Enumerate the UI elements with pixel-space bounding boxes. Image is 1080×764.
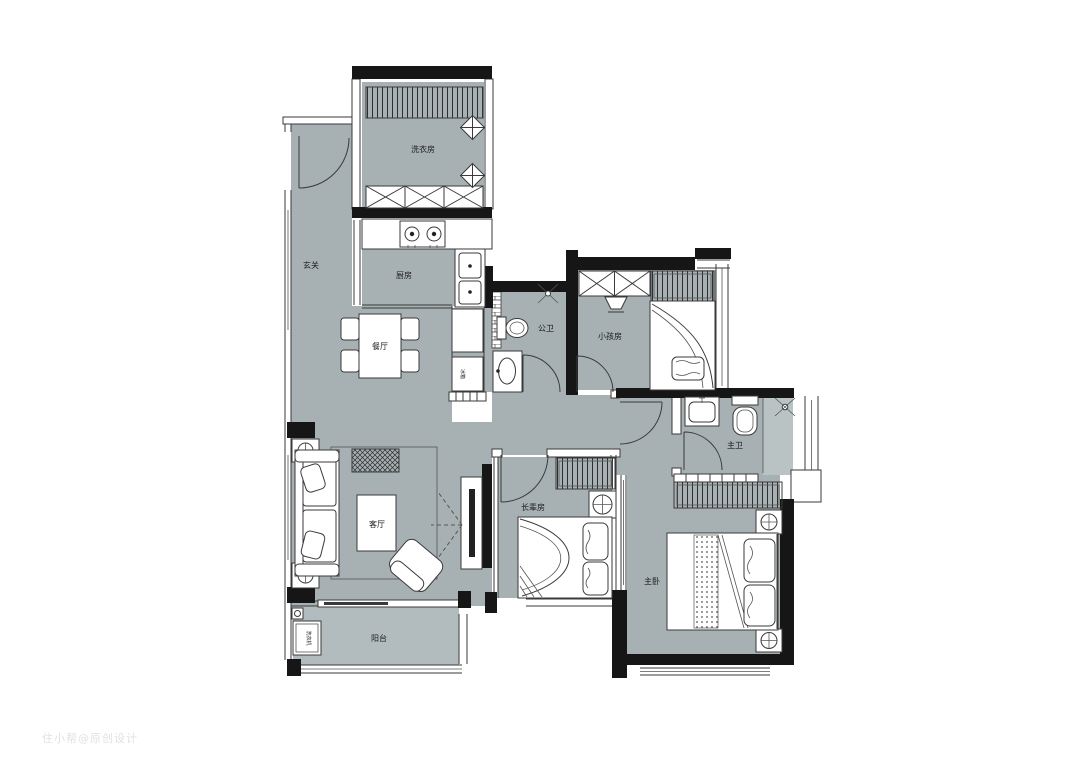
pillow bbox=[744, 539, 775, 582]
wall-kids-top-right bbox=[695, 248, 731, 259]
kids-closet bbox=[651, 271, 714, 301]
laundry-cabinet-row bbox=[366, 186, 483, 208]
room-label-entry: 玄关 bbox=[303, 260, 319, 270]
kids-bed bbox=[650, 301, 715, 390]
dining-chair bbox=[341, 318, 359, 340]
fridge-label: 冰箱 bbox=[459, 369, 466, 379]
floor-drain-icon bbox=[292, 608, 303, 619]
master-hall-floor bbox=[616, 398, 676, 475]
wall-bath-public-top bbox=[489, 281, 578, 292]
wall-living-br-pier bbox=[458, 591, 471, 608]
elder-bottom-window bbox=[526, 599, 612, 606]
wall-master-left-pier bbox=[612, 590, 627, 678]
floor-plan-page: 洗衣房 厨房 玄关 餐厅 冰箱 bbox=[0, 0, 1080, 764]
pillow bbox=[583, 523, 608, 560]
tv-unit bbox=[461, 477, 482, 569]
elder-bed bbox=[518, 517, 612, 598]
wall-elder-left-pier bbox=[485, 592, 497, 613]
room-label-master: 主卧 bbox=[644, 576, 660, 586]
pillow bbox=[672, 357, 704, 380]
balcony-right-window bbox=[459, 614, 467, 664]
stove-icon bbox=[400, 221, 445, 248]
laundry-left-wall bbox=[352, 79, 360, 209]
room-label-kids: 小孩房 bbox=[598, 331, 622, 341]
master-cabinet-row bbox=[674, 474, 758, 482]
dining-chair bbox=[401, 350, 419, 372]
room-label-living: 客厅 bbox=[369, 519, 385, 529]
storage-bench bbox=[352, 449, 399, 472]
wall-left-pier-b bbox=[287, 587, 315, 603]
laundry-right-wall bbox=[485, 79, 493, 209]
nightstand-lamp-icon bbox=[756, 629, 782, 652]
wall-living-right bbox=[482, 464, 492, 568]
tall-cabinet bbox=[452, 309, 483, 352]
sliding-door-panel bbox=[324, 602, 388, 605]
toilet-icon bbox=[732, 396, 758, 435]
kitchen-sink-icon bbox=[455, 249, 485, 307]
wall-kids-top bbox=[578, 257, 695, 270]
master-wardrobe bbox=[674, 482, 782, 508]
room-label-bath-public: 公卫 bbox=[538, 324, 554, 333]
watermark: 住小帮@原创设计 bbox=[42, 730, 138, 746]
cabinet-row bbox=[449, 392, 486, 401]
pillow bbox=[583, 562, 608, 595]
wall-left-pier-a bbox=[287, 422, 315, 438]
drying-rack-icon bbox=[366, 87, 483, 118]
room-label-balcony: 阳台 bbox=[371, 633, 387, 643]
room-label-dining: 餐厅 bbox=[372, 342, 388, 351]
left-exterior-wall bbox=[285, 124, 291, 660]
kitchen-left-wall bbox=[354, 220, 360, 305]
room-label-kitchen: 厨房 bbox=[396, 270, 412, 280]
washer-label: 洗衣机 bbox=[305, 630, 312, 645]
washbasin-icon bbox=[493, 351, 522, 392]
nightstand-lamp-icon bbox=[756, 510, 782, 534]
blanket-band bbox=[694, 535, 718, 628]
washing-machine-icon: 洗衣机 bbox=[293, 621, 321, 655]
toilet-icon bbox=[497, 317, 528, 339]
wall-master-bottom bbox=[627, 654, 794, 665]
wall-balcony-corner bbox=[287, 659, 301, 676]
elder-wardrobe bbox=[556, 458, 615, 489]
exterior-niche bbox=[791, 470, 821, 502]
floor-plan-svg: 洗衣房 厨房 玄关 餐厅 冰箱 bbox=[0, 0, 1080, 764]
wall-laundry-bottom bbox=[352, 207, 492, 218]
pillow bbox=[744, 585, 775, 626]
nightstand-lamp-icon bbox=[589, 491, 616, 518]
dining-chair bbox=[341, 350, 359, 372]
sofa bbox=[295, 450, 339, 576]
dining-chair bbox=[401, 318, 419, 340]
fridge-icon bbox=[452, 357, 483, 391]
corridor-floor bbox=[492, 395, 616, 455]
shower-zone-floor bbox=[763, 398, 793, 475]
wall-laundry-top bbox=[352, 66, 492, 79]
room-entry: 玄关 bbox=[303, 260, 319, 270]
room-label-elder: 长辈房 bbox=[521, 502, 545, 512]
entry-top-wall bbox=[283, 117, 353, 124]
vanity-sink-icon bbox=[685, 397, 719, 426]
elder-left-wall bbox=[494, 457, 498, 598]
kids-wardrobe bbox=[579, 271, 650, 296]
kids-top-window bbox=[697, 260, 730, 268]
room-label-bath-master: 主卫 bbox=[727, 440, 743, 450]
master-bed bbox=[667, 533, 778, 630]
bath-master-wall-stub-top bbox=[672, 396, 681, 434]
room-label-laundry: 洗衣房 bbox=[411, 144, 435, 154]
corridor-wall-stub-right bbox=[547, 449, 620, 457]
wall-bath-kids-divider bbox=[566, 250, 578, 395]
tv-icon bbox=[469, 489, 475, 557]
